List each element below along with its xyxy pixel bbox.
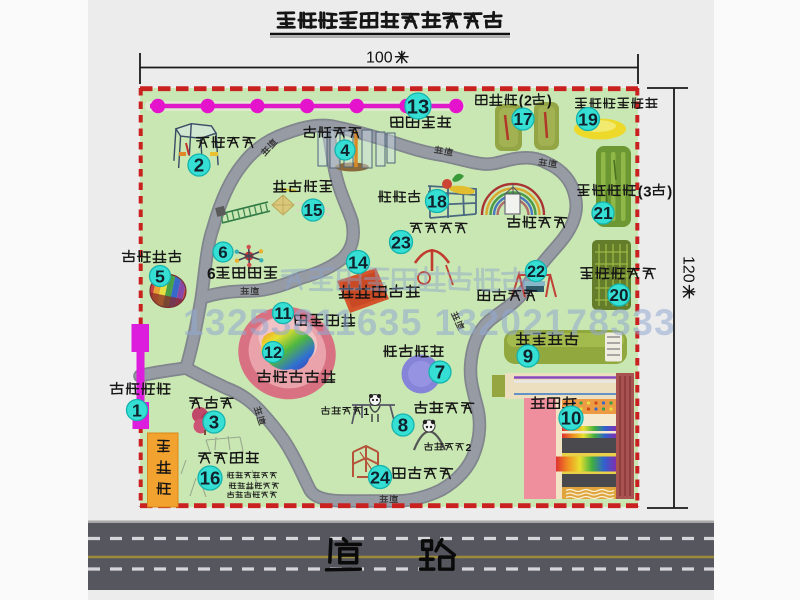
svg-text:11: 11 <box>274 305 291 323</box>
svg-text:2: 2 <box>194 155 204 176</box>
svg-text:22: 22 <box>527 263 545 281</box>
svg-text:24: 24 <box>370 467 390 487</box>
svg-text:(: ( <box>638 184 643 200</box>
svg-text:16: 16 <box>200 468 221 489</box>
svg-text:13253811635 13202178333: 13253811635 13202178333 <box>183 302 676 343</box>
svg-text:19: 19 <box>578 109 598 129</box>
svg-text:14: 14 <box>348 252 368 272</box>
svg-text:23: 23 <box>391 232 411 252</box>
svg-text:1: 1 <box>363 407 369 418</box>
svg-text:): ) <box>547 94 552 110</box>
svg-text:21: 21 <box>593 204 613 223</box>
svg-text:12: 12 <box>264 344 282 362</box>
svg-text:8: 8 <box>398 415 408 436</box>
svg-text:6: 6 <box>207 266 216 283</box>
svg-text:10: 10 <box>561 408 582 429</box>
svg-text:120: 120 <box>680 256 697 283</box>
svg-text:1: 1 <box>132 400 142 420</box>
svg-text:100: 100 <box>366 50 393 67</box>
svg-text:): ) <box>667 184 672 200</box>
svg-text:6: 6 <box>218 243 227 262</box>
svg-text:9: 9 <box>523 346 533 367</box>
svg-text:17: 17 <box>513 110 532 129</box>
svg-text:7: 7 <box>435 362 445 383</box>
svg-text:15: 15 <box>303 201 323 220</box>
svg-text:3: 3 <box>643 184 651 200</box>
svg-text:3: 3 <box>209 412 219 433</box>
svg-text:2: 2 <box>524 94 532 110</box>
svg-text:5: 5 <box>155 266 165 286</box>
svg-text:4: 4 <box>340 141 350 160</box>
svg-text:(: ( <box>519 94 524 110</box>
svg-text:20: 20 <box>609 286 628 305</box>
svg-text:18: 18 <box>427 191 447 211</box>
svg-text:2: 2 <box>466 443 472 454</box>
svg-text:13: 13 <box>407 96 429 118</box>
